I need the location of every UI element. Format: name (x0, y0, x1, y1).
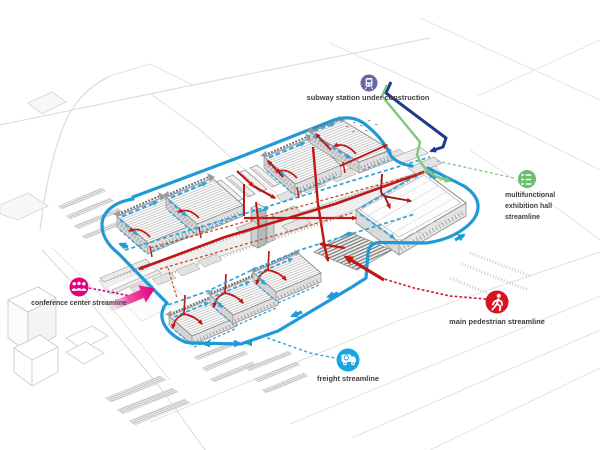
svg-text:main pedestrian streamline: main pedestrian streamline (449, 317, 545, 326)
svg-text:exhibition hall: exhibition hall (505, 203, 552, 210)
svg-text:streamline: streamline (505, 214, 540, 221)
svg-text:conference center streamline: conference center streamline (31, 300, 127, 307)
svg-text:freight streamline: freight streamline (317, 374, 379, 383)
svg-text:subway station under construct: subway station under construction (307, 93, 430, 102)
svg-text:multifunctional: multifunctional (505, 192, 555, 199)
